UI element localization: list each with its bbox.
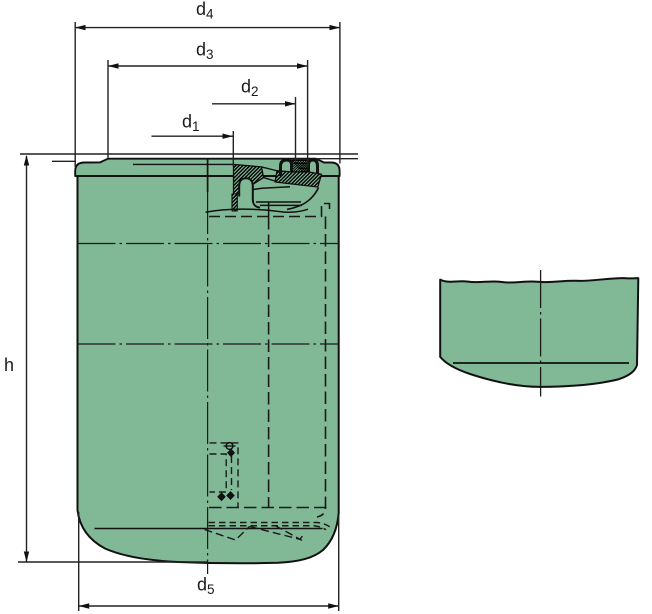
svg-text:h: h <box>4 355 14 375</box>
